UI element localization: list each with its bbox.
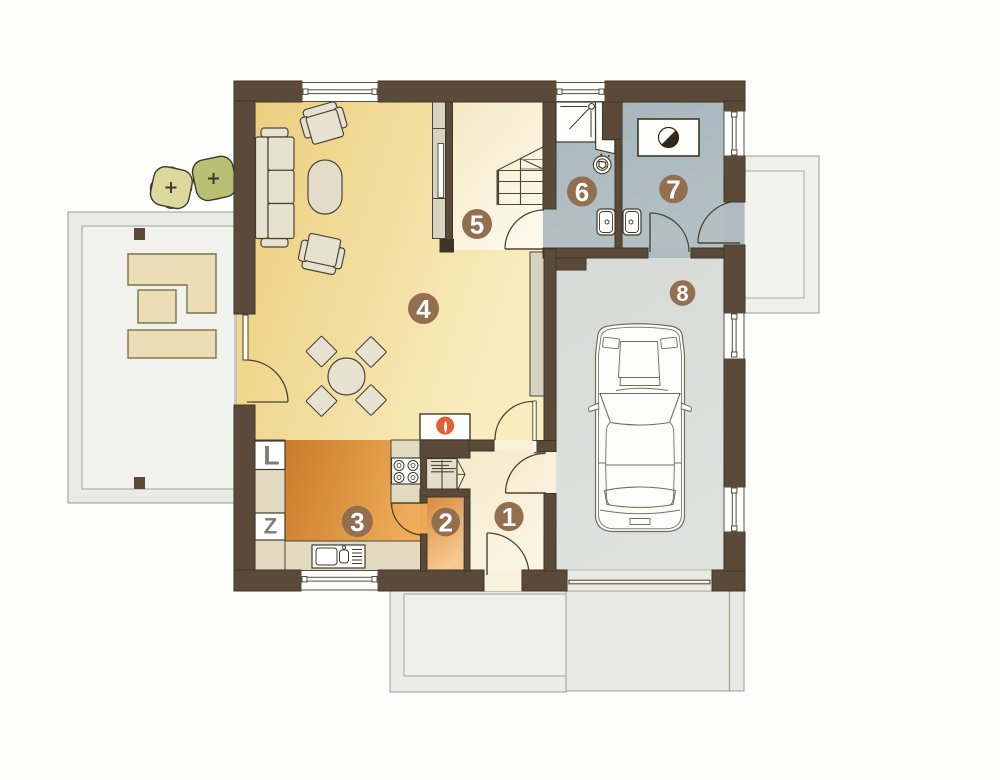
svg-text:1: 1 (502, 502, 516, 532)
svg-text:2: 2 (438, 508, 452, 538)
svg-text:6: 6 (575, 177, 589, 207)
svg-text:7: 7 (666, 175, 680, 205)
svg-text:3: 3 (350, 507, 364, 537)
svg-text:L: L (263, 441, 280, 471)
svg-text:4: 4 (416, 294, 431, 324)
svg-text:Z: Z (264, 514, 277, 539)
svg-text:5: 5 (470, 210, 484, 240)
svg-text:8: 8 (676, 281, 688, 306)
